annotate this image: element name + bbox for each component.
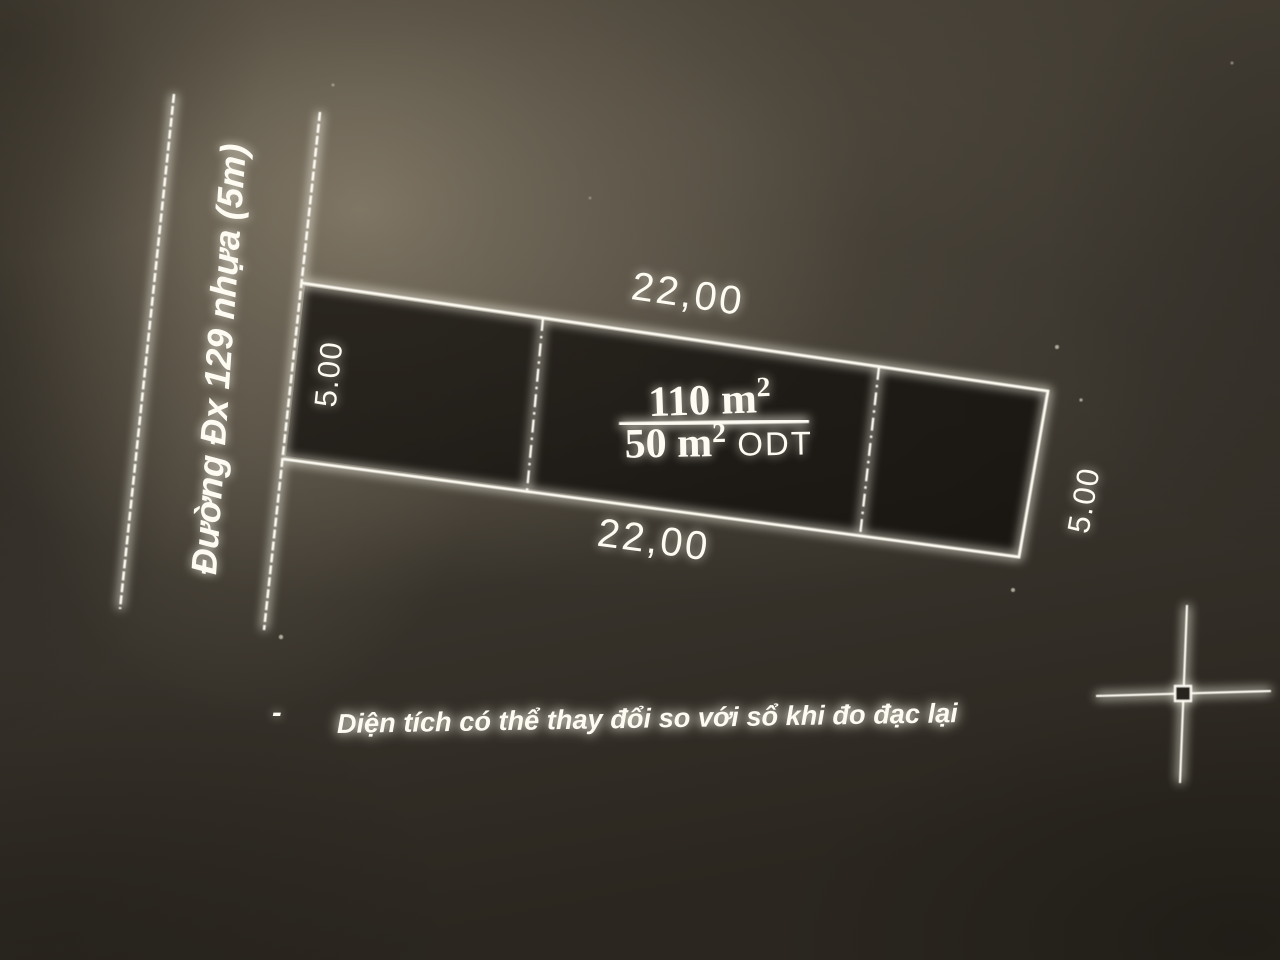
svg-text:110 m2: 110 m2 (647, 372, 771, 426)
svg-text:-: - (272, 697, 282, 729)
svg-text:5.00: 5.00 (308, 339, 350, 409)
